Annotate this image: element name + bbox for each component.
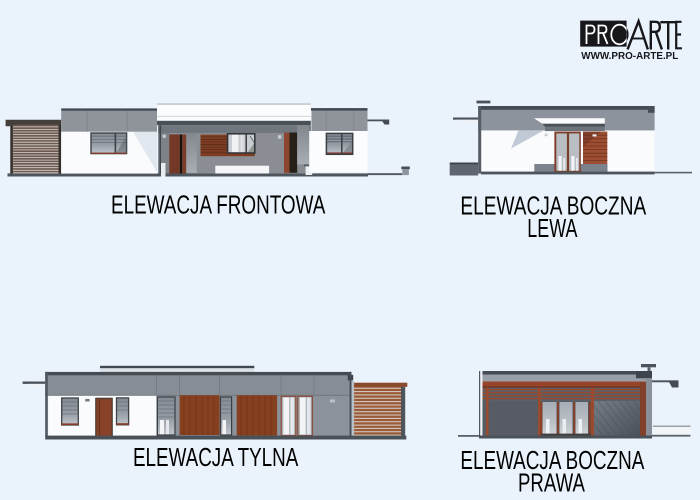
svg-text:WWW.PRO-ARTE.PL: WWW.PRO-ARTE.PL xyxy=(581,51,678,62)
svg-text:ELEWACJA FRONTOWA: ELEWACJA FRONTOWA xyxy=(111,189,326,219)
svg-text:ELEWACJA TYLNA: ELEWACJA TYLNA xyxy=(133,442,299,472)
svg-text:PRAWA: PRAWA xyxy=(518,467,585,497)
svg-text:LEWA: LEWA xyxy=(527,213,578,243)
